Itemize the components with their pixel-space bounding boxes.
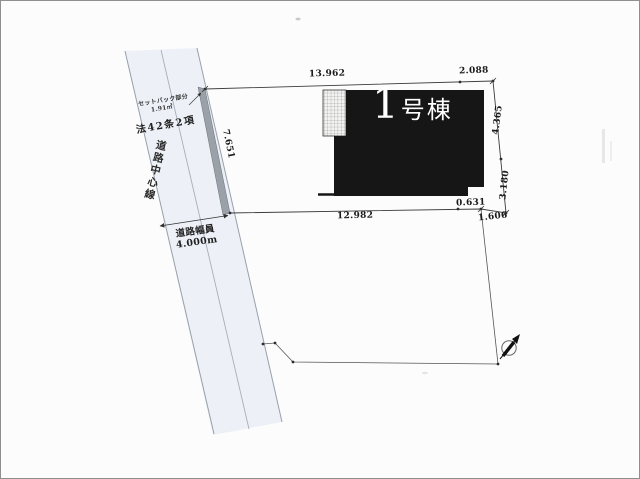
building-suffix: 号棟 xyxy=(401,96,453,124)
lot-boundary-lower xyxy=(263,209,498,364)
dim-top-left: 13.962 xyxy=(309,69,345,80)
dim-bottom-small: 0.631 xyxy=(456,197,486,208)
dim-bottom-main: 12.982 xyxy=(337,211,373,222)
building-number: 1 xyxy=(372,79,401,128)
hatched-area xyxy=(323,90,346,136)
building-label: 1号棟 xyxy=(372,99,453,121)
north-arrow-icon xyxy=(500,334,520,359)
dim-top-right: 2.088 xyxy=(459,65,489,76)
site-plan-scan: 13.962 2.088 4.365 3.180 12.982 0.631 1.… xyxy=(0,0,640,479)
